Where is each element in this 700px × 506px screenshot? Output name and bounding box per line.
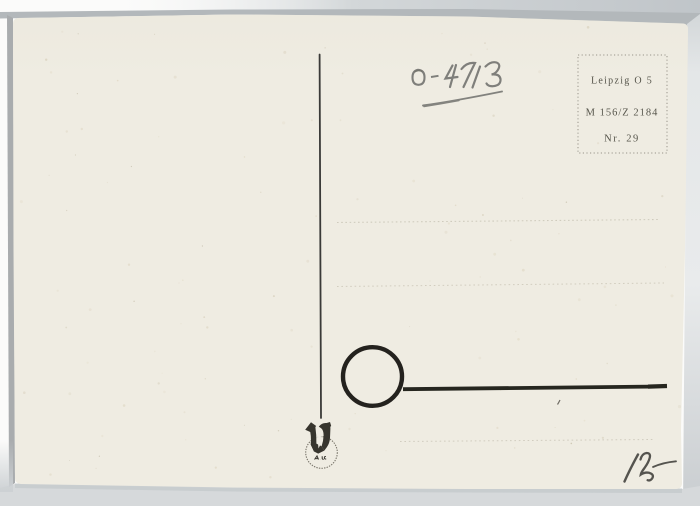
svg-text:M 156/Z 2184: M 156/Z 2184	[586, 108, 659, 119]
svg-text:Nr. 29: Nr. 29	[604, 134, 640, 145]
svg-text:Leipzig O 5: Leipzig O 5	[591, 76, 653, 87]
